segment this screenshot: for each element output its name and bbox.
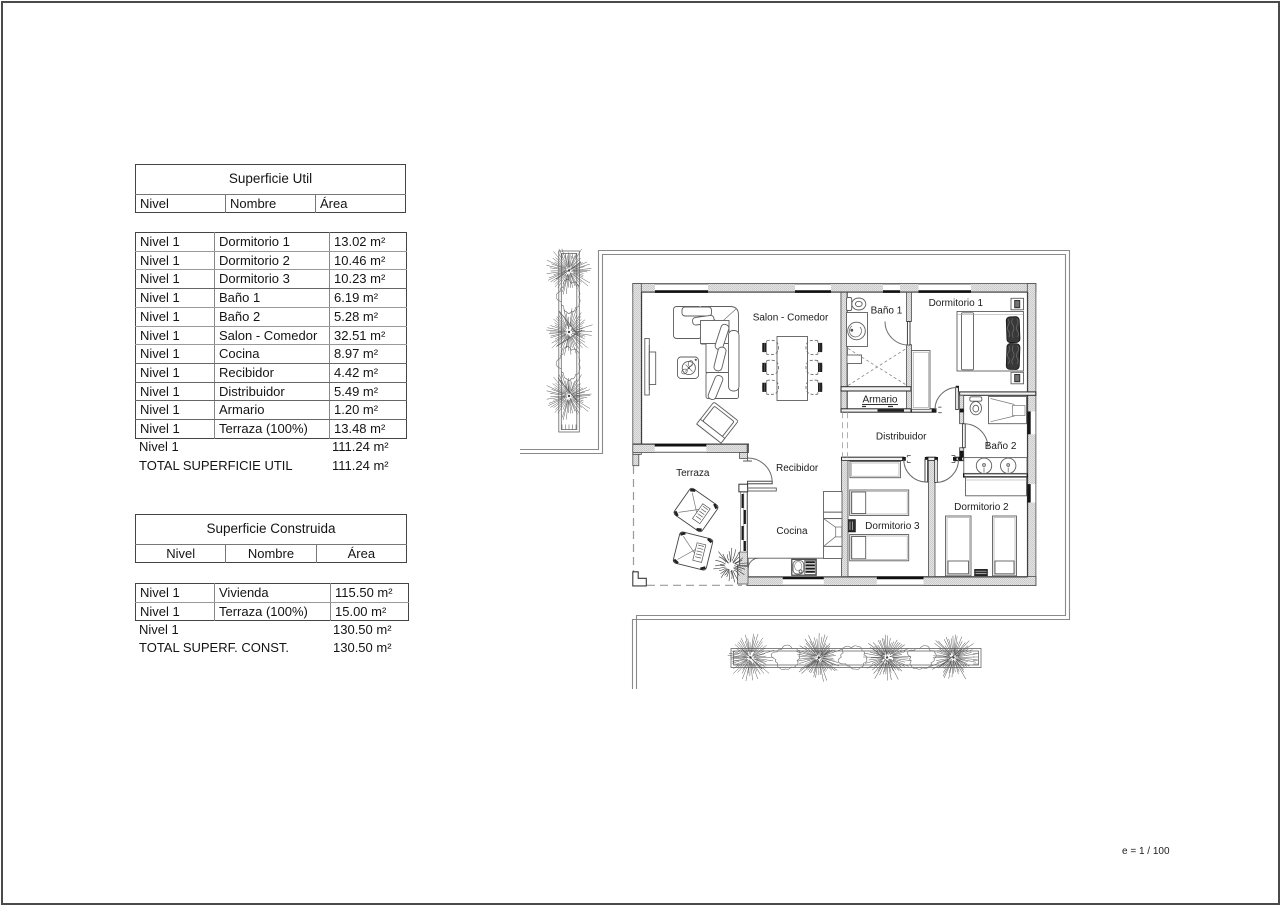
svg-text:Cocina: Cocina	[776, 526, 808, 537]
svg-text:Dormitorio 1: Dormitorio 1	[929, 298, 984, 309]
svg-text:Terraza: Terraza	[676, 468, 710, 479]
svg-text:Salon - Comedor: Salon - Comedor	[753, 312, 829, 323]
svg-text:Distribuidor: Distribuidor	[876, 432, 927, 443]
svg-text:Dormitorio 2: Dormitorio 2	[954, 502, 1009, 513]
svg-text:Baño 1: Baño 1	[871, 305, 903, 316]
svg-text:Recibidor: Recibidor	[776, 463, 819, 474]
svg-text:Baño 2: Baño 2	[985, 441, 1017, 452]
svg-text:Armario: Armario	[862, 395, 897, 406]
svg-text:Dormitorio 3: Dormitorio 3	[865, 521, 920, 532]
